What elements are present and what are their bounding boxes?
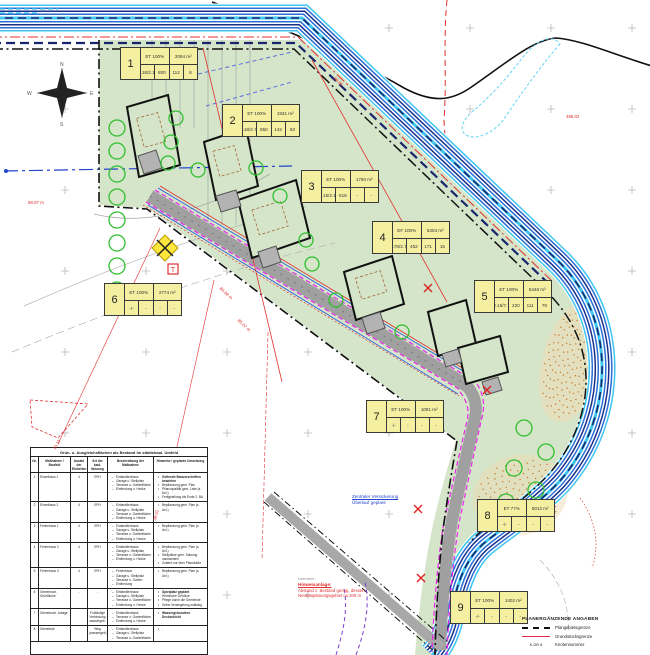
measurement-label: 88.97 m xyxy=(28,200,44,205)
lot-detail: - xyxy=(541,517,554,531)
measurement-label: 485.02 xyxy=(566,114,579,119)
lot-area: 5448 m² xyxy=(524,281,552,297)
lot-detail: 15 xyxy=(436,239,449,253)
lot-detail: - xyxy=(168,301,181,315)
lot-gfz: ET 100% xyxy=(141,48,170,64)
lot-info-box-4: 4EF 100%5303 m²2.78/2.7145217115 xyxy=(372,221,450,254)
lot-detail: 111 xyxy=(524,298,538,312)
lot-detail: - xyxy=(401,418,415,432)
lot-gfz: ET 100% xyxy=(243,105,272,121)
lot-detail: 452 xyxy=(407,239,421,253)
table-header-cell: Nr. xyxy=(31,457,39,472)
table-header-cell: Beschreibung der Maßnahme xyxy=(108,457,154,472)
legend-item: K-GR 8Knotennummer xyxy=(522,642,648,647)
infiltration-note: Zentraler Versickerung Überlauf geplant xyxy=(352,494,398,506)
compass-w: W xyxy=(27,91,32,97)
lot-info-box-5: 5ET 100%5448 m²2.15/7.122011179 xyxy=(474,280,552,313)
table-title: Grün- u. Ausgleichsflächen als Bestand i… xyxy=(31,448,207,457)
lot-detail: - xyxy=(365,188,378,202)
lot-detail: 2.78/2.71 xyxy=(393,239,407,253)
infiltration-note-line2: Überlauf geplant xyxy=(352,500,398,506)
lot-detail: -/- xyxy=(387,418,401,432)
lot-info-box-3: 3ET 100%1760 m²2.15/2.11818-- xyxy=(301,170,379,203)
lot-gfz: ET 100% xyxy=(471,592,500,608)
pond-outline xyxy=(462,39,560,137)
lot-detail: 171 xyxy=(422,239,436,253)
lot-number: 9 xyxy=(451,592,471,623)
lot-number: 5 xyxy=(475,281,495,312)
lot-detail: - xyxy=(154,301,168,315)
table-row: 3Ferienhaus 14EFHEinfamilienhausGarage u… xyxy=(31,523,207,544)
lot-area: 1760 m² xyxy=(351,171,379,187)
lot-number: 3 xyxy=(302,171,322,202)
legend-swatch-dashdot xyxy=(522,627,550,629)
legend-swatch-ktext: K-GR 8 xyxy=(522,643,550,647)
table-row: 7Gemeinsch. AnlageFußläufige Verbindung … xyxy=(31,609,207,625)
site-plan-canvas: N E S W T 1ET 100%2094 m²2.18/2.17800112… xyxy=(0,0,650,655)
lot-info-box-8: 8ET 77%5012 m²-/---- xyxy=(477,499,555,532)
lot-area: 1931 m² xyxy=(272,105,300,121)
lot-detail: 2.15/2.11 xyxy=(322,188,336,202)
legend: PLANERGÄNZENDE ANGABEN Plangebietsgrenze… xyxy=(522,617,648,651)
lot-number: 2 xyxy=(223,105,243,136)
table-row: 4Ferienhaus 24EFHEinfamilienhausGarage u… xyxy=(31,543,207,568)
lot-gfz: ET 100% xyxy=(322,171,351,187)
lot-detail: 142 xyxy=(272,122,286,136)
lot-number: 4 xyxy=(373,222,393,253)
lot-area: 1402 m² xyxy=(500,592,528,608)
legend-item: Plangebietsgrenze xyxy=(522,625,648,630)
lot-area: 2774 m² xyxy=(154,284,182,300)
lot-info-box-6: 6ET 100%2774 m²-/---- xyxy=(104,283,182,316)
lot-detail: - xyxy=(416,418,430,432)
t-marker-label: T xyxy=(171,267,176,274)
table-row: 8GemeindeWeg (wassergeb.)Einfamilienhaus… xyxy=(31,626,207,642)
table-header-cell: Art der baul. Nutzung xyxy=(88,457,108,472)
compass-e: E xyxy=(90,91,94,97)
lot-detail: - xyxy=(139,301,153,315)
lot-detail: 112 xyxy=(170,65,184,79)
lot-detail: 2.18/2.71 xyxy=(243,122,257,136)
table-row: 5Ferienhaus 34EFHFerienhausGarage u. Ste… xyxy=(31,568,207,589)
lot-info-box-7: 7ET 100%1081 m²-/---- xyxy=(366,400,444,433)
lot-detail: 8 xyxy=(184,65,197,79)
lot-area: 5303 m² xyxy=(422,222,450,238)
lot-number: 1 xyxy=(121,48,141,79)
lot-detail: - xyxy=(430,418,443,432)
lot-gfz: ET 100% xyxy=(387,401,416,417)
lot-info-box-9: 9ET 100%1402 m²-/---- xyxy=(450,591,528,624)
lot-gfz: ET 100% xyxy=(125,284,154,300)
lot-number: 6 xyxy=(105,284,125,315)
lot-detail: -/- xyxy=(471,609,485,623)
lot-detail: - xyxy=(527,517,541,531)
lot-number: 8 xyxy=(478,500,498,531)
legend-title: PLANERGÄNZENDE ANGABEN xyxy=(522,617,648,622)
compass-rose: N E S W xyxy=(27,62,94,128)
lot-detail: 83 xyxy=(286,122,299,136)
legend-label: Plangebietsgrenze xyxy=(555,625,591,630)
compass-n: N xyxy=(60,62,64,68)
lot-info-box-2: 2ET 100%1931 m²2.18/2.7185014283 xyxy=(222,104,300,137)
lot-detail: 2.18/2.17 xyxy=(141,65,155,79)
lot-area: 5012 m² xyxy=(527,500,555,516)
lot-detail: 2.15/7.1 xyxy=(495,298,509,312)
lot-gfz: EF 100% xyxy=(393,222,422,238)
table-row: 2Einzelhaus 24EFHEinfamilienhausGarage u… xyxy=(31,502,207,523)
table-header-cell: Maßnahme / Baufeld xyxy=(39,457,71,472)
noise-note: Leerrohre Hinweisanlage: Abstand z. Best… xyxy=(298,577,365,599)
table-header-cell: Hinweise / geplante Umsetzung xyxy=(154,457,207,472)
lot-detail: - xyxy=(512,517,526,531)
hydrant-symbol: T xyxy=(152,235,178,274)
lot-detail: 220 xyxy=(509,298,523,312)
lot-detail: 818 xyxy=(336,188,350,202)
lot-detail: - xyxy=(485,609,499,623)
legend-item: Grundstücksgrenze xyxy=(522,634,648,639)
table-header-row: Nr.Maßnahme / BaufeldAnzahl der Einheite… xyxy=(31,457,207,473)
lot-gfz: ET 100% xyxy=(495,281,524,297)
compass-s: S xyxy=(60,122,64,128)
lot-area: 1081 m² xyxy=(416,401,444,417)
legend-swatch-redline xyxy=(522,636,550,637)
lot-detail: 850 xyxy=(257,122,271,136)
table-header-cell: Anzahl der Einheiten xyxy=(71,457,88,472)
lot-detail: - xyxy=(500,609,514,623)
lot-detail: -/- xyxy=(498,517,512,531)
lot-gfz: ET 77% xyxy=(498,500,527,516)
lot-info-box-1: 1ET 100%2094 m²2.18/2.178001128 xyxy=(120,47,198,80)
measures-table: Grün- u. Ausgleichsflächen als Bestand i… xyxy=(30,447,208,655)
noise-note-line4: Neubauplanungsgebiet ca 200 m xyxy=(298,593,365,599)
lot-detail: - xyxy=(351,188,365,202)
legend-label: Grundstücksgrenze xyxy=(555,634,592,639)
lot-number: 7 xyxy=(367,401,387,432)
lot-detail: -/- xyxy=(125,301,139,315)
table-row: 6Gemeinsch. Grünfläche--EinfamilienhausG… xyxy=(31,589,207,610)
lot-detail: 800 xyxy=(155,65,169,79)
legend-label: Knotennummer xyxy=(555,642,584,647)
table-row: 1Einzelhaus 14EFHEinfamilienhausGarage u… xyxy=(31,473,207,502)
lot-area: 2094 m² xyxy=(170,48,198,64)
lot-detail: 79 xyxy=(538,298,551,312)
